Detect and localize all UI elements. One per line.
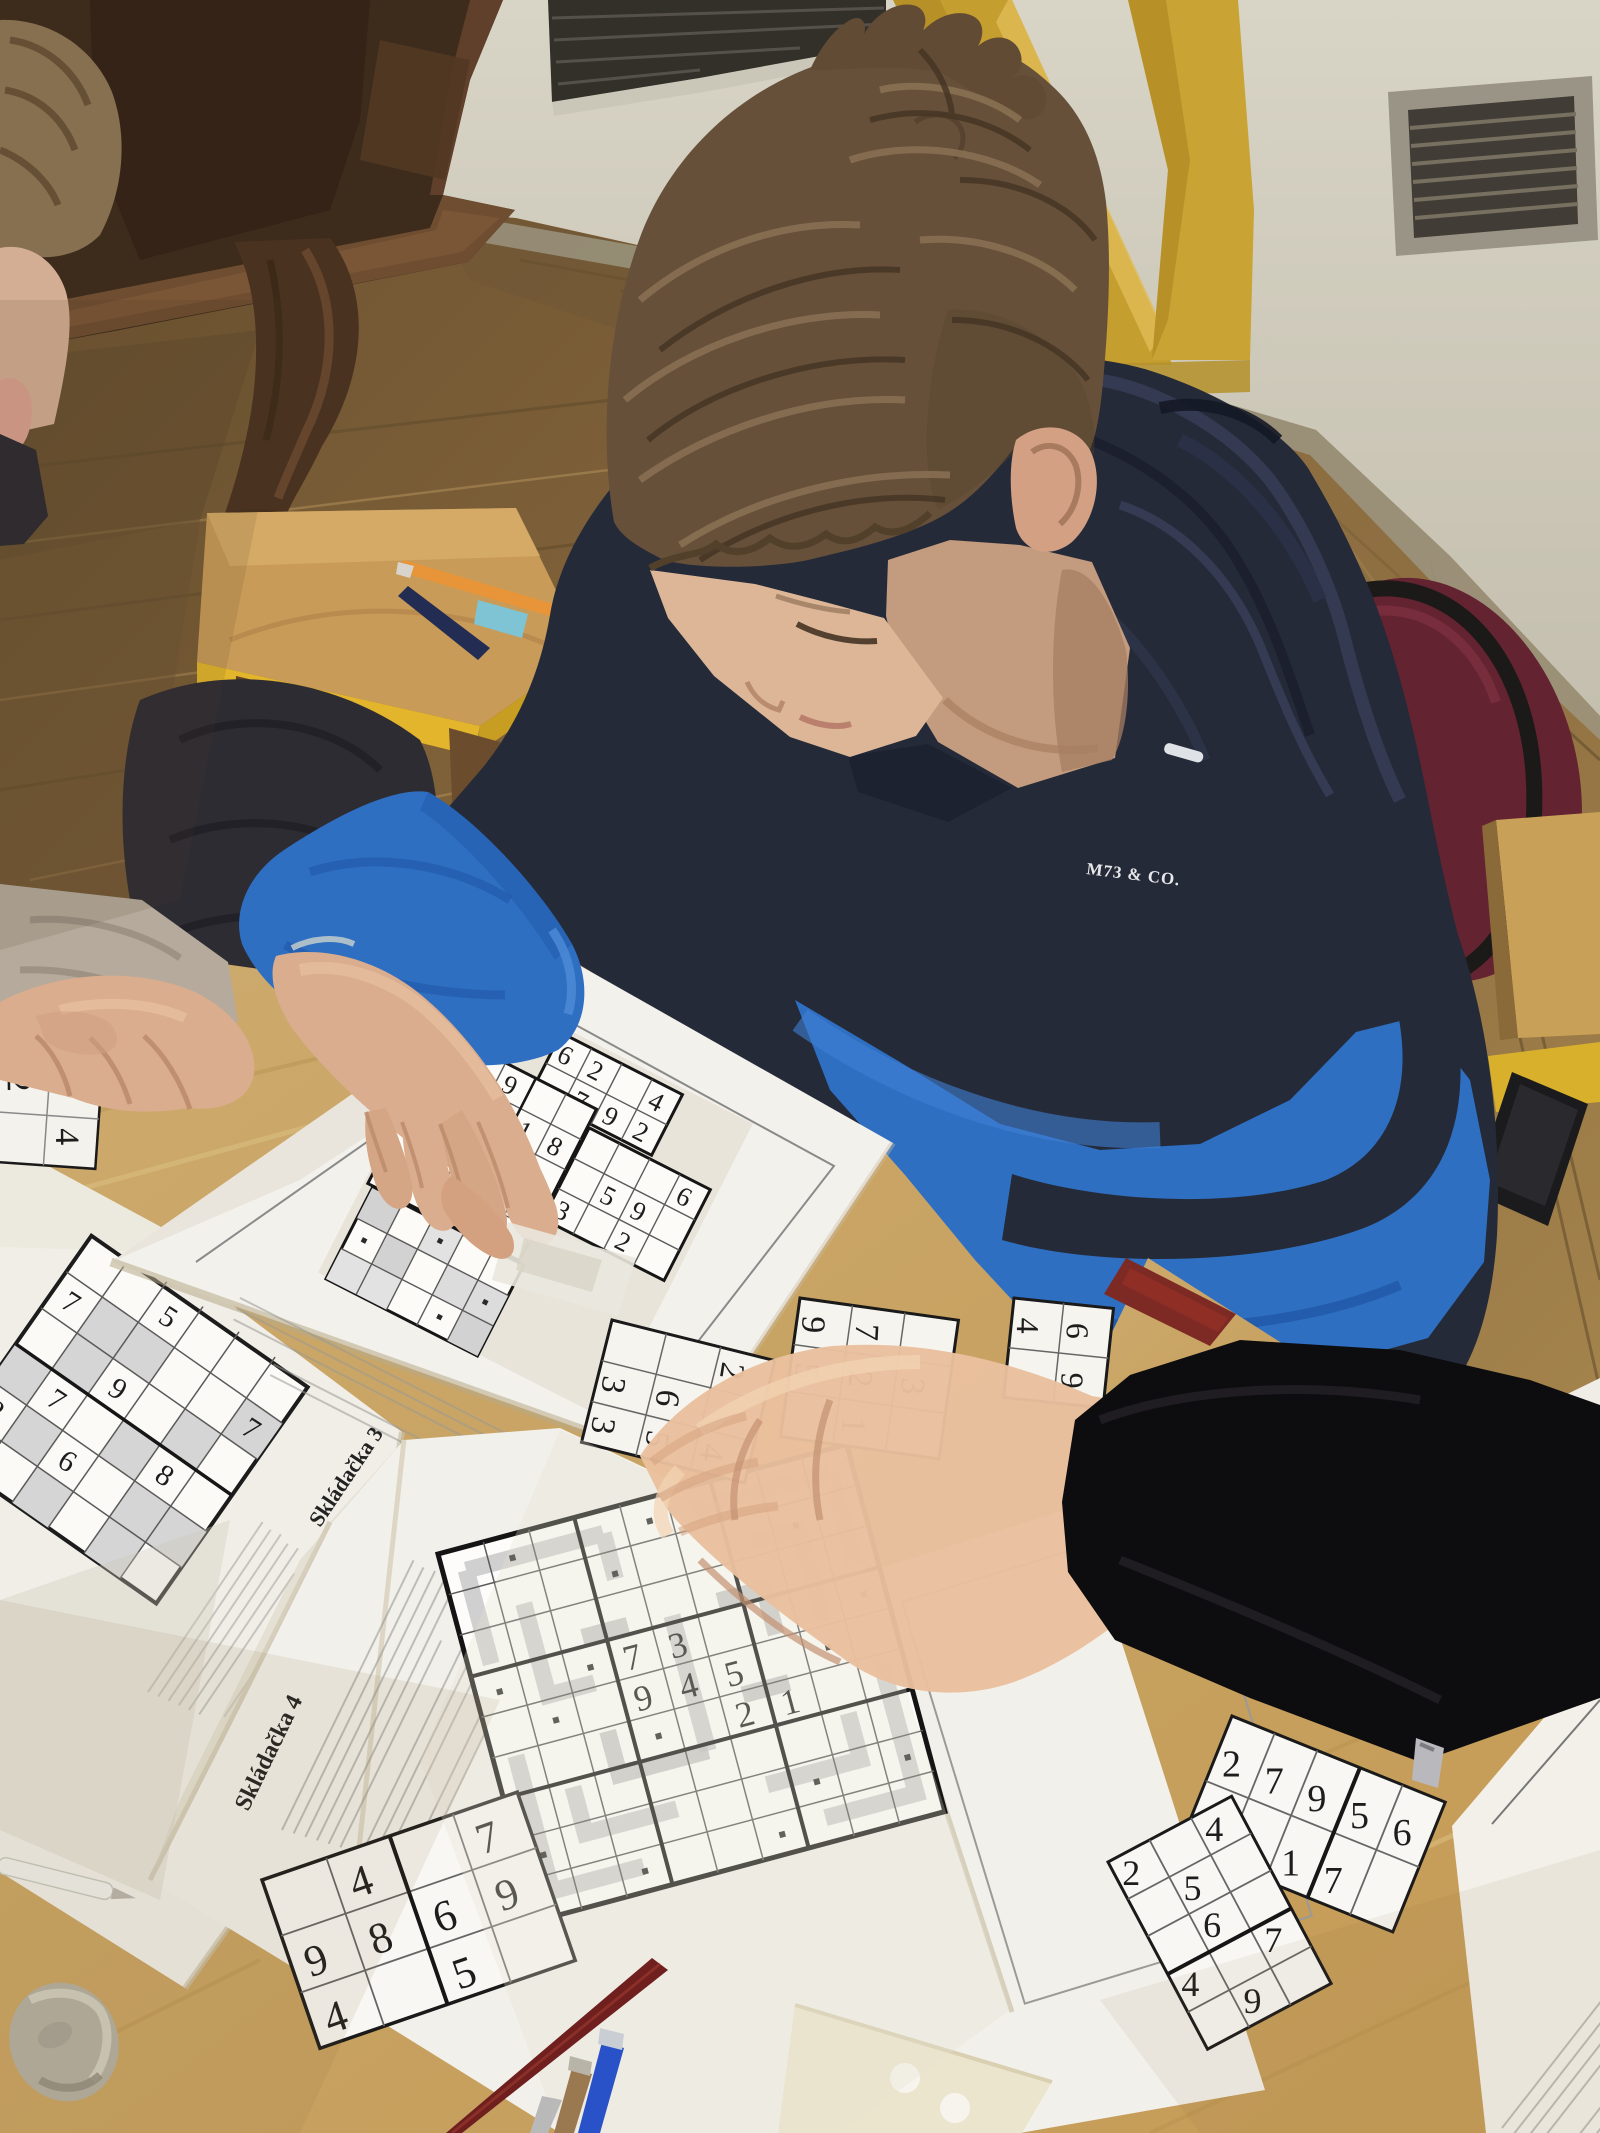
svg-text:7: 7 <box>1265 1761 1284 1803</box>
svg-text:5: 5 <box>1183 1868 1201 1908</box>
svg-text:9: 9 <box>1307 1778 1326 1820</box>
svg-text:4: 4 <box>1205 1809 1223 1849</box>
svg-text:4: 4 <box>48 1128 85 1146</box>
svg-text:2: 2 <box>1222 1743 1241 1785</box>
svg-text:7: 7 <box>847 1323 885 1342</box>
svg-text:1: 1 <box>1281 1843 1300 1885</box>
svg-text:4: 4 <box>1010 1317 1046 1334</box>
svg-text:6: 6 <box>1060 1323 1096 1340</box>
svg-text:9: 9 <box>794 1315 832 1334</box>
svg-text:6: 6 <box>1203 1905 1221 1945</box>
svg-text:6: 6 <box>1393 1812 1412 1854</box>
svg-text:5: 5 <box>1350 1795 1369 1837</box>
svg-text:2: 2 <box>1122 1853 1140 1893</box>
svg-text:7: 7 <box>1324 1860 1343 1902</box>
